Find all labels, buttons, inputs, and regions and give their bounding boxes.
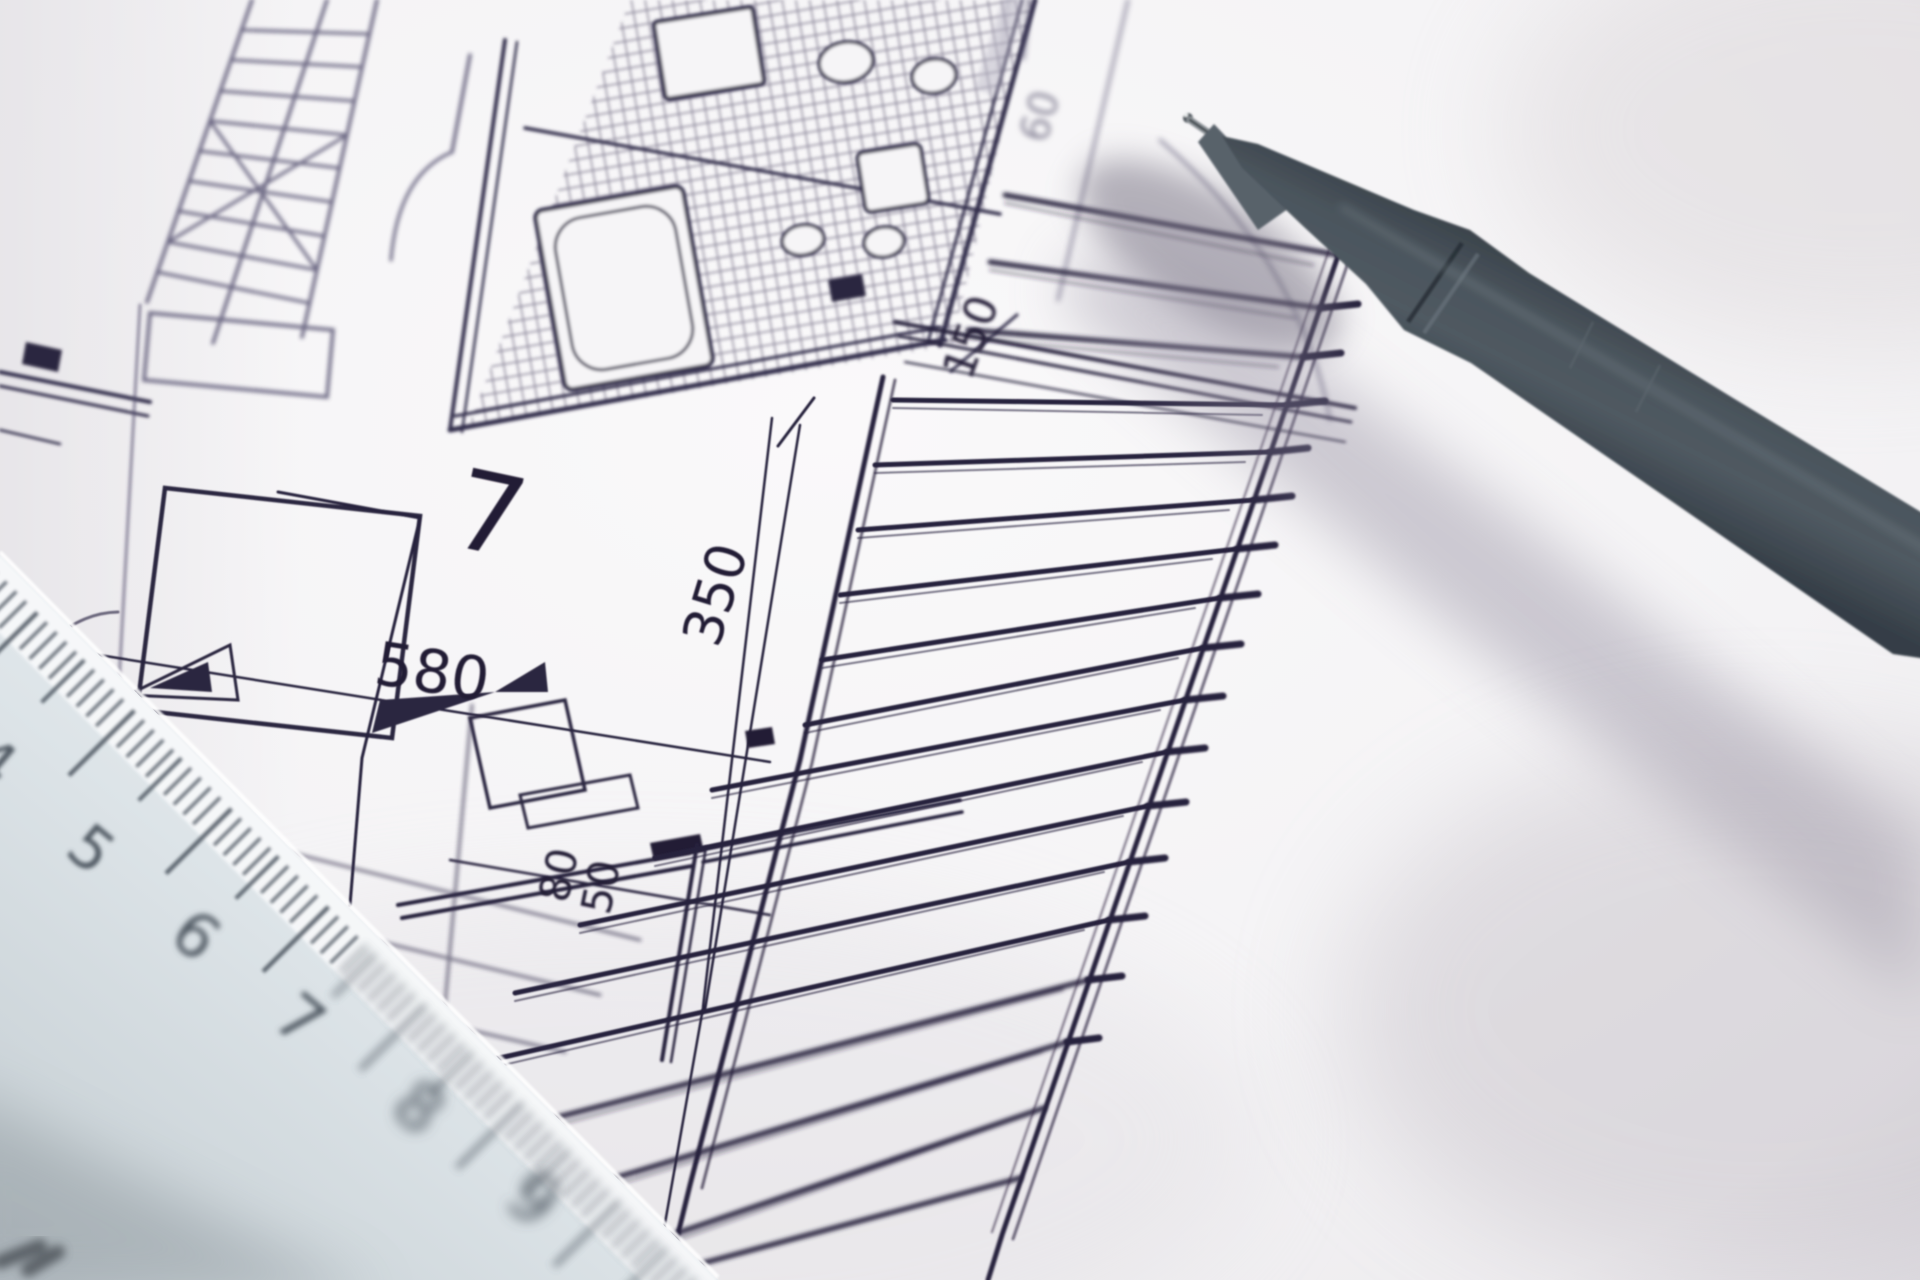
photo-canvas: 7 580 350 80 50 150 60 4 5 6 7	[0, 0, 1920, 1280]
vignette	[0, 0, 1920, 1280]
photo-scene: 7 580 350 80 50 150 60 4 5 6 7	[0, 0, 1920, 1280]
